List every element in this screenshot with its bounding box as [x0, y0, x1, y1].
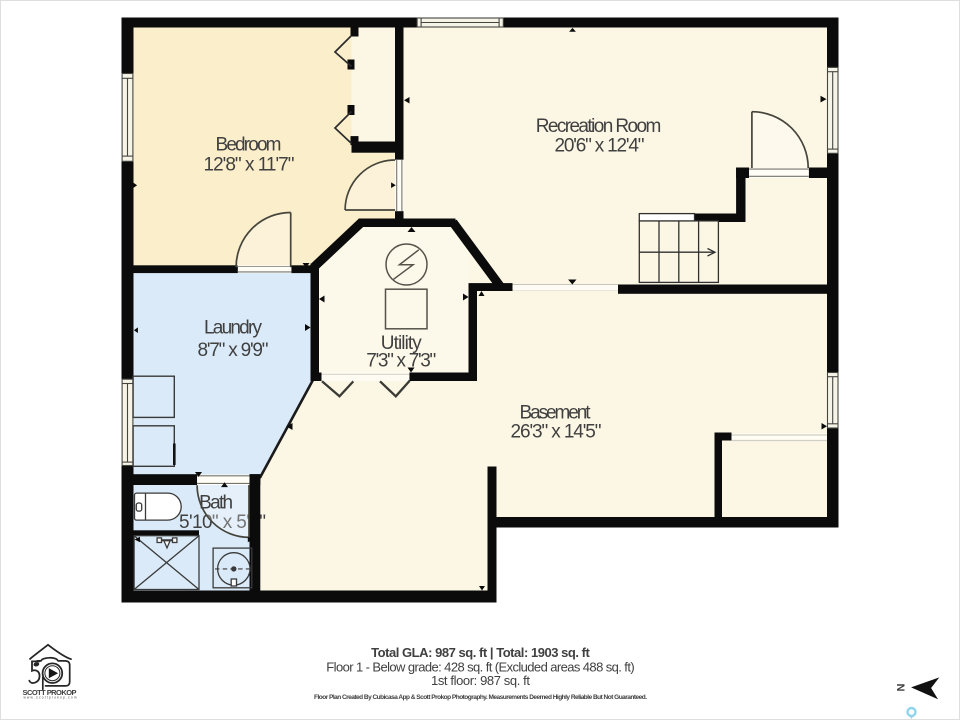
svg-text:w w w . s c o t t p r o k o p: w w w . s c o t t p r o k o p . c o m — [24, 695, 77, 699]
svg-text:N: N — [896, 683, 908, 691]
svg-text:1st floor: 987 sq. ft: 1st floor: 987 sq. ft — [431, 673, 530, 688]
svg-text:Recreation Room: Recreation Room — [536, 116, 662, 137]
svg-text:26'3" x 14'5": 26'3" x 14'5" — [511, 422, 602, 443]
svg-text:Bath: Bath — [199, 493, 233, 514]
svg-text:Laundry: Laundry — [204, 318, 263, 339]
svg-text:Floor Plan Created By Cubicasa: Floor Plan Created By Cubicasa App & Sco… — [314, 694, 647, 701]
svg-text:Total GLA: 987 sq. ft | Total:: Total GLA: 987 sq. ft | Total: 1903 sq. … — [371, 645, 590, 660]
svg-text:7'3" x 7'3": 7'3" x 7'3" — [366, 351, 436, 372]
svg-text:12'8" x 11'7": 12'8" x 11'7" — [204, 155, 295, 176]
svg-text:Basement: Basement — [520, 403, 592, 424]
svg-text:8'7" x 9'9": 8'7" x 9'9" — [198, 340, 269, 361]
svg-text:20'6" x 12'4": 20'6" x 12'4" — [555, 136, 645, 157]
svg-text:Bedroom: Bedroom — [216, 135, 282, 156]
